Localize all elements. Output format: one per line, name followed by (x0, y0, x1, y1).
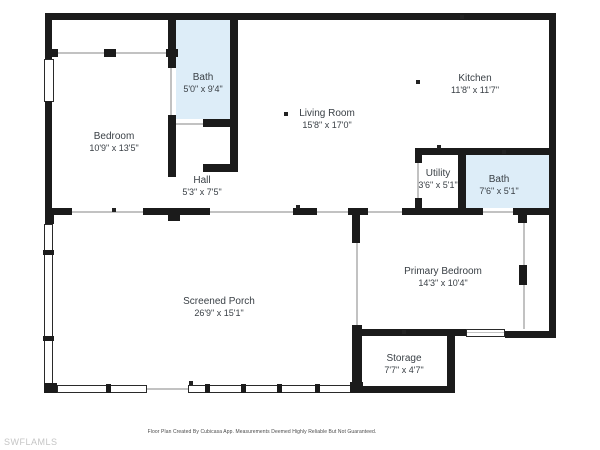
wall (52, 49, 58, 57)
room-label-bath-right: Bath 7'6" x 5'1" (479, 174, 518, 197)
room-name: Living Room (299, 108, 355, 119)
wall (168, 20, 176, 68)
wall (44, 383, 57, 393)
wall (549, 13, 556, 338)
opening-line (317, 211, 348, 213)
wall (352, 386, 455, 393)
room-name: Bedroom (89, 131, 138, 142)
wall (43, 336, 54, 341)
opening-line (72, 211, 143, 213)
opening-line (483, 211, 513, 213)
room-name: Utility (418, 168, 457, 179)
measure-tick (437, 145, 441, 149)
measure-tick (189, 381, 193, 385)
opening-line (467, 332, 504, 333)
room-label-hall: Hall 5'3" x 7'5" (182, 175, 221, 198)
window (44, 59, 54, 102)
room-name: Bath (479, 174, 518, 185)
window (57, 385, 147, 393)
room-label-utility: Utility 3'6" x 5'1" (418, 168, 457, 191)
wall (106, 384, 111, 393)
room-name: Kitchen (451, 73, 499, 84)
wall (45, 13, 556, 20)
opening-line (176, 123, 205, 125)
room-label-bath-top: Bath 5'0" x 9'4" (183, 72, 222, 95)
wall (43, 250, 54, 255)
wall (104, 49, 116, 57)
room-name: Screened Porch (183, 296, 255, 307)
room-label-kitchen: Kitchen 11'8" x 11'7" (451, 73, 499, 96)
opening-line (368, 211, 402, 213)
wall (447, 329, 455, 393)
window (188, 385, 352, 393)
wall (168, 215, 180, 221)
measure-tick (112, 208, 116, 212)
wall (143, 208, 210, 215)
room-name: Primary Bedroom (404, 266, 482, 277)
wall (241, 384, 246, 393)
room-label-storage: Storage 7'7" x 4'7" (384, 353, 423, 376)
floor-plan-canvas: Bath 5'0" x 9'4" Bedroom 10'9" x 13'5" H… (0, 0, 600, 450)
room-dims: 5'3" x 7'5" (182, 187, 221, 198)
room-dims: 7'6" x 5'1" (479, 186, 518, 197)
room-name: Storage (384, 353, 423, 364)
wall (45, 215, 54, 224)
wall (230, 13, 238, 172)
room-name: Bath (183, 72, 222, 83)
measure-tick (284, 112, 288, 116)
room-dims: 26'9" x 15'1" (183, 308, 255, 319)
room-dims: 11'8" x 11'7" (451, 85, 499, 96)
wall (293, 208, 317, 215)
opening-line (147, 388, 188, 390)
room-dims: 10'9" x 13'5" (89, 143, 138, 154)
room-dims: 5'0" x 9'4" (183, 84, 222, 95)
wall (205, 384, 210, 393)
measure-tick (502, 150, 506, 154)
wall (166, 49, 178, 57)
measure-tick (402, 330, 406, 334)
wall (45, 101, 52, 215)
window (44, 224, 53, 384)
measure-tick (416, 80, 420, 84)
bath-floor-fill (176, 20, 230, 119)
wall (402, 208, 483, 215)
disclaimer-text: Floor Plan Created By Cubicasa App. Meas… (148, 429, 377, 435)
room-dims: 7'7" x 4'7" (384, 365, 423, 376)
wall (352, 325, 362, 393)
wall (348, 208, 368, 215)
wall (519, 265, 527, 285)
window (466, 329, 505, 337)
wall (277, 384, 282, 393)
wall (518, 215, 527, 223)
room-label-living-room: Living Room 15'8" x 17'0" (299, 108, 355, 131)
measure-tick (296, 205, 300, 209)
room-dims: 15'8" x 17'0" (299, 120, 355, 131)
room-name: Hall (182, 175, 221, 186)
room-label-primary-bedroom: Primary Bedroom 14'3" x 10'4" (404, 266, 482, 289)
wall (168, 115, 176, 177)
room-dims: 14'3" x 10'4" (404, 278, 482, 289)
wall (458, 155, 466, 208)
opening-line (170, 68, 172, 115)
opening-line (210, 211, 293, 213)
wall (415, 155, 422, 163)
measure-tick (460, 15, 464, 19)
room-label-bedroom: Bedroom 10'9" x 13'5" (89, 131, 138, 154)
wall (455, 329, 466, 336)
wall (415, 148, 556, 155)
wall (315, 384, 320, 393)
opening-line (356, 243, 358, 325)
room-label-screened-porch: Screened Porch 26'9" x 15'1" (183, 296, 255, 319)
room-dims: 3'6" x 5'1" (418, 180, 457, 191)
wall (352, 215, 360, 243)
mls-watermark: SWFLAMLS (4, 437, 58, 447)
